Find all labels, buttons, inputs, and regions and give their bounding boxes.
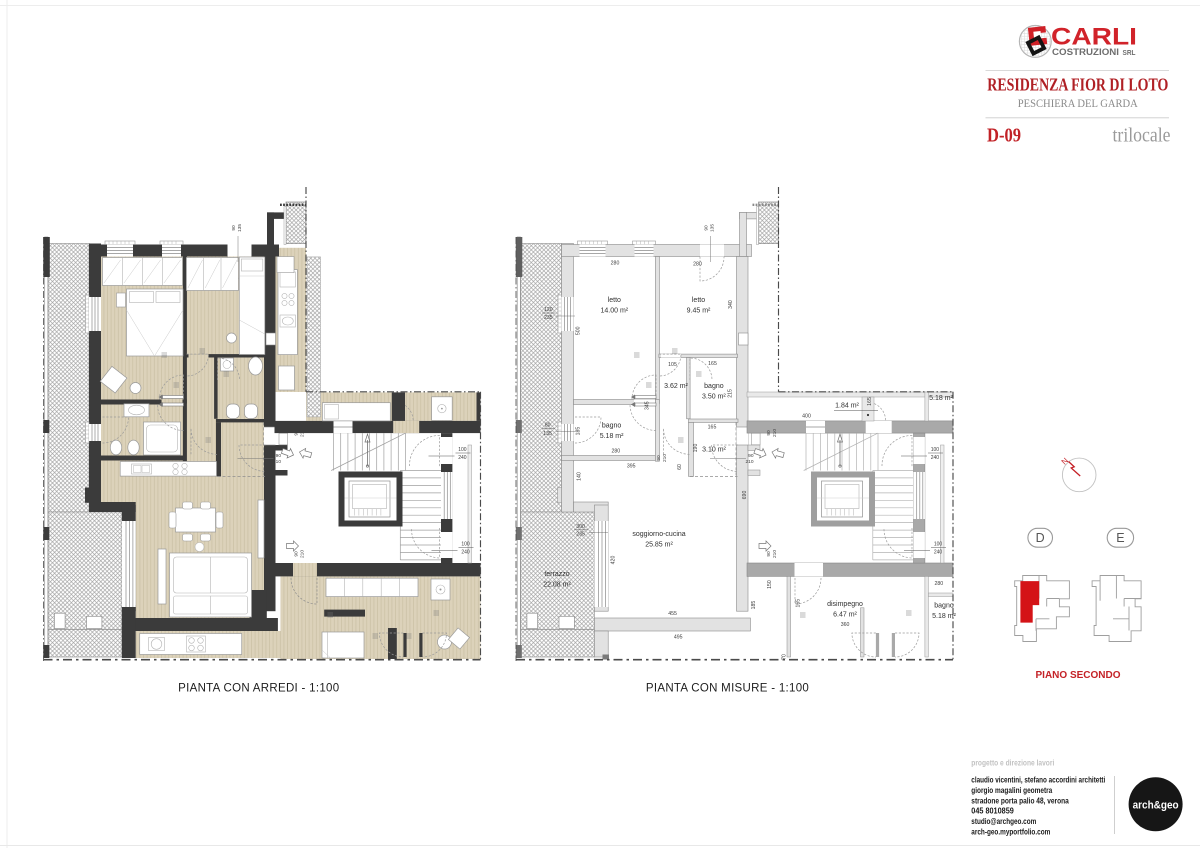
svg-text:60: 60: [677, 464, 683, 470]
svg-text:135: 135: [237, 224, 243, 232]
svg-text:1.84 m²: 1.84 m²: [835, 403, 859, 410]
svg-text:215: 215: [728, 389, 734, 398]
svg-text:progetto e direzione lavori: progetto e direzione lavori: [971, 758, 1054, 768]
svg-text:280: 280: [934, 581, 943, 587]
svg-text:100: 100: [934, 542, 943, 548]
svg-text:240: 240: [934, 550, 943, 556]
svg-text:SRL: SRL: [1123, 50, 1137, 57]
svg-text:letto: letto: [608, 297, 621, 304]
svg-text:90: 90: [294, 551, 300, 557]
svg-text:RESIDENZA FIOR DI LOTO: RESIDENZA FIOR DI LOTO: [987, 75, 1168, 95]
svg-text:studio@archgeo.com: studio@archgeo.com: [971, 816, 1036, 826]
svg-text:190: 190: [693, 444, 699, 453]
svg-text:PIANTA CON ARREDI - 1:100: PIANTA CON ARREDI - 1:100: [178, 683, 339, 695]
svg-text:3.62 m²: 3.62 m²: [664, 383, 688, 390]
svg-text:5.18 m²: 5.18 m²: [600, 433, 624, 440]
svg-text:90: 90: [231, 225, 237, 231]
svg-text:80: 80: [545, 423, 551, 429]
svg-text:bagno: bagno: [602, 423, 622, 430]
svg-text:claudio vicentini, stefano acc: claudio vicentini, stefano accordini arc…: [971, 775, 1105, 785]
svg-text:90: 90: [276, 453, 282, 459]
svg-text:giorgio magalini geometra: giorgio magalini geometra: [971, 785, 1052, 795]
svg-text:280: 280: [693, 262, 702, 268]
svg-text:135: 135: [543, 431, 552, 437]
svg-text:5.18 m²: 5.18 m²: [932, 613, 956, 620]
svg-text:100: 100: [458, 447, 467, 453]
svg-text:360: 360: [841, 622, 850, 628]
svg-text:D: D: [1036, 531, 1045, 545]
svg-text:340: 340: [728, 300, 734, 309]
svg-text:420: 420: [610, 556, 616, 565]
svg-text:120: 120: [544, 307, 553, 313]
svg-text:bagno: bagno: [934, 603, 954, 610]
svg-text:165: 165: [708, 361, 717, 367]
svg-text:PESCHIERA DEL GARDA: PESCHIERA DEL GARDA: [1018, 98, 1139, 110]
svg-text:trilocale: trilocale: [1113, 125, 1171, 147]
svg-text:22.08 m²: 22.08 m²: [543, 582, 571, 589]
svg-text:150: 150: [767, 580, 773, 589]
svg-text:arch&geo: arch&geo: [1133, 799, 1179, 811]
svg-text:90: 90: [294, 430, 300, 436]
svg-text:3.10 m²: 3.10 m²: [702, 447, 726, 454]
svg-text:400: 400: [802, 413, 811, 419]
svg-text:PIANTA CON MISURE - 1:100: PIANTA CON MISURE - 1:100: [646, 683, 809, 695]
svg-text:495: 495: [674, 635, 683, 641]
svg-text:arch-geo.myportfolio.com: arch-geo.myportfolio.com: [971, 827, 1050, 837]
svg-text:disimpegno: disimpegno: [827, 601, 863, 608]
svg-text:240: 240: [461, 550, 470, 556]
svg-text:6.47 m²: 6.47 m²: [833, 612, 857, 619]
svg-text:690: 690: [742, 491, 748, 500]
svg-text:185: 185: [751, 601, 757, 610]
svg-text:105: 105: [668, 362, 677, 368]
svg-text:210: 210: [662, 454, 668, 462]
svg-text:185: 185: [575, 427, 581, 436]
svg-text:240: 240: [458, 455, 467, 461]
svg-text:235: 235: [544, 315, 553, 321]
svg-text:9.45 m²: 9.45 m²: [687, 308, 711, 315]
svg-text:90: 90: [766, 551, 772, 557]
svg-text:455: 455: [668, 611, 677, 617]
svg-text:COSTRUZIONI: COSTRUZIONI: [1052, 47, 1119, 58]
svg-text:235: 235: [576, 532, 585, 538]
svg-text:letto: letto: [692, 297, 705, 304]
svg-text:345: 345: [645, 401, 651, 410]
svg-text:165: 165: [867, 397, 873, 406]
svg-text:500: 500: [576, 326, 582, 335]
svg-text:210: 210: [772, 429, 778, 437]
svg-text:135: 135: [710, 224, 716, 232]
svg-text:90: 90: [704, 225, 710, 231]
svg-text:210: 210: [273, 459, 281, 465]
svg-text:210: 210: [300, 429, 306, 437]
svg-text:terrazzo: terrazzo: [544, 571, 569, 578]
svg-text:045 8010859: 045 8010859: [971, 806, 1014, 816]
svg-text:210: 210: [772, 550, 778, 558]
svg-text:90: 90: [656, 455, 662, 461]
svg-text:bagno: bagno: [704, 383, 724, 390]
svg-text:165: 165: [708, 425, 717, 431]
svg-text:5.18 m²: 5.18 m²: [929, 395, 953, 402]
svg-text:90: 90: [748, 453, 754, 459]
svg-text:soggiorno-cucina: soggiorno-cucina: [632, 531, 685, 538]
svg-text:14.00 m²: 14.00 m²: [600, 308, 628, 315]
svg-text:D-09: D-09: [987, 126, 1021, 147]
svg-text:25.85 m²: 25.85 m²: [645, 542, 673, 549]
svg-text:280: 280: [611, 261, 620, 267]
svg-text:395: 395: [627, 463, 636, 469]
svg-text:PIANO SECONDO: PIANO SECONDO: [1036, 669, 1121, 681]
svg-text:140: 140: [577, 472, 583, 481]
svg-text:280: 280: [611, 449, 620, 455]
svg-text:stradone porta palio 48, veron: stradone porta palio 48, verona: [971, 795, 1069, 805]
svg-text:100: 100: [461, 542, 470, 548]
svg-text:210: 210: [300, 550, 306, 558]
svg-text:240: 240: [931, 455, 940, 461]
svg-text:300: 300: [576, 524, 585, 530]
svg-text:3.50 m²: 3.50 m²: [702, 394, 726, 401]
svg-text:210: 210: [745, 459, 753, 465]
svg-text:100: 100: [931, 447, 940, 453]
svg-text:70: 70: [781, 654, 787, 660]
svg-text:165: 165: [796, 599, 802, 608]
svg-text:E: E: [1116, 531, 1124, 545]
svg-text:90: 90: [766, 430, 772, 436]
